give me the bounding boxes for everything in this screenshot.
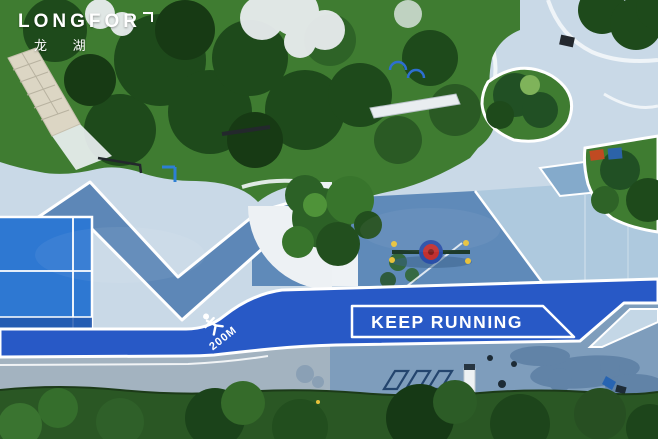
logo-wordmark: LONGFOR <box>18 12 141 31</box>
planting-island <box>482 68 572 141</box>
light-streak <box>35 227 205 283</box>
logo-chinese: 龙 湖 <box>18 35 153 54</box>
planter-red <box>589 149 604 161</box>
lawn-light <box>316 400 320 404</box>
keep-running-label: KEEP RUNNING <box>371 312 523 332</box>
aerial-scene: KEEP RUNNING 200M <box>0 0 658 439</box>
planter-blue <box>608 147 623 159</box>
light-streak <box>360 208 500 252</box>
longfor-logo: LONGFOR 龙 湖 <box>18 12 153 54</box>
logo-corner-icon <box>143 12 153 22</box>
aerial-park-photo: KEEP RUNNING 200M LONGFOR <box>0 0 658 439</box>
